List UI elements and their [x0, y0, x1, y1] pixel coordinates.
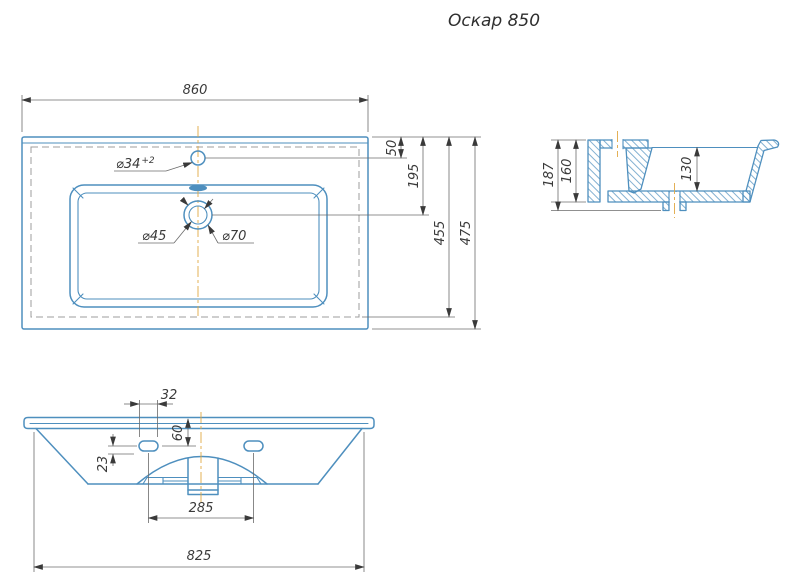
drawing-sheet: Оскар 850 860 — [0, 0, 800, 585]
dim-475: 475 — [459, 221, 474, 246]
dim-130: 130 — [680, 157, 695, 182]
dim-23: 23 — [96, 456, 111, 473]
leader-line — [183, 200, 188, 205]
dim-285: 285 — [189, 501, 214, 516]
dim-187: 187 — [542, 162, 557, 188]
drawing-title: Оскар 850 — [448, 11, 540, 31]
basin-corner-chamfer — [73, 294, 83, 304]
section-deck — [600, 140, 648, 148]
dim-50: 50 — [385, 140, 400, 157]
dim-60: 60 — [171, 425, 186, 442]
dim-455: 455 — [433, 221, 448, 246]
basin-corner-chamfer — [314, 188, 324, 198]
leader-line — [208, 225, 218, 243]
mounting-slot-left — [139, 441, 158, 451]
drain-block-bottom — [188, 490, 218, 495]
plan-view: 860 50 195 455 475 ⌀34+2 ⌀45 ⌀70 — [22, 83, 481, 329]
dim-faucet-dia: ⌀34+2 — [116, 156, 155, 172]
section-drain-stub — [680, 202, 686, 211]
leader-line — [174, 222, 191, 243]
dim-32: 32 — [161, 388, 178, 403]
dim-825: 825 — [187, 549, 212, 564]
front-side-slope-right — [318, 429, 362, 485]
basin-corner-chamfer — [73, 188, 83, 198]
mounting-slot-right — [244, 441, 263, 451]
basin-corner-chamfer — [314, 294, 324, 304]
drain-arch — [137, 457, 267, 485]
drawing-canvas: Оскар 850 860 — [0, 0, 800, 585]
basin-rim-outer — [70, 185, 327, 307]
dim-drain-outer: ⌀70 — [222, 229, 246, 244]
section-view: 187 160 130 — [542, 131, 779, 218]
leader-line — [166, 163, 192, 171]
plan-outer-edge — [22, 137, 368, 329]
dim-160: 160 — [560, 159, 575, 184]
plan-hidden-contour — [31, 147, 359, 317]
dim-860: 860 — [183, 83, 208, 98]
basin-rim-inner — [78, 193, 319, 299]
front-side-slope-left — [36, 429, 88, 485]
section-bowl-back-wall — [626, 148, 652, 193]
section-front-wall — [743, 140, 779, 202]
foot-left — [143, 478, 163, 485]
section-back-wall — [588, 140, 600, 202]
foot-right — [241, 478, 261, 485]
section-drain-stub — [663, 202, 669, 211]
dim-drain-inner: ⌀45 — [142, 229, 166, 244]
front-view: 32 60 23 285 825 — [24, 388, 374, 572]
overflow-slot — [189, 185, 207, 191]
dim-195: 195 — [407, 164, 422, 189]
